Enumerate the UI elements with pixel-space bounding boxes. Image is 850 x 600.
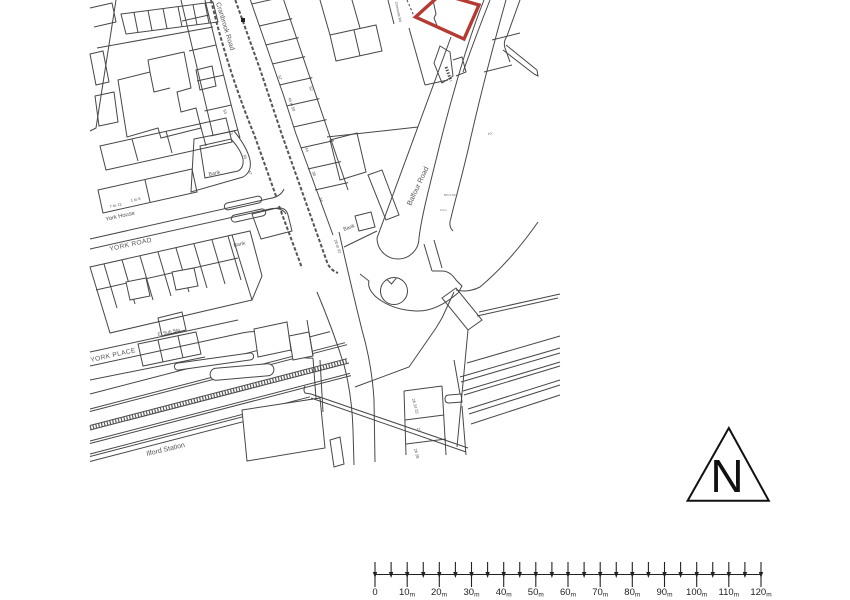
- svg-text:9.2m: 9.2m: [440, 208, 447, 212]
- svg-text:N: N: [710, 450, 743, 502]
- svg-text:0: 0: [372, 587, 377, 598]
- svg-text:BM 9.53m: BM 9.53m: [444, 193, 458, 197]
